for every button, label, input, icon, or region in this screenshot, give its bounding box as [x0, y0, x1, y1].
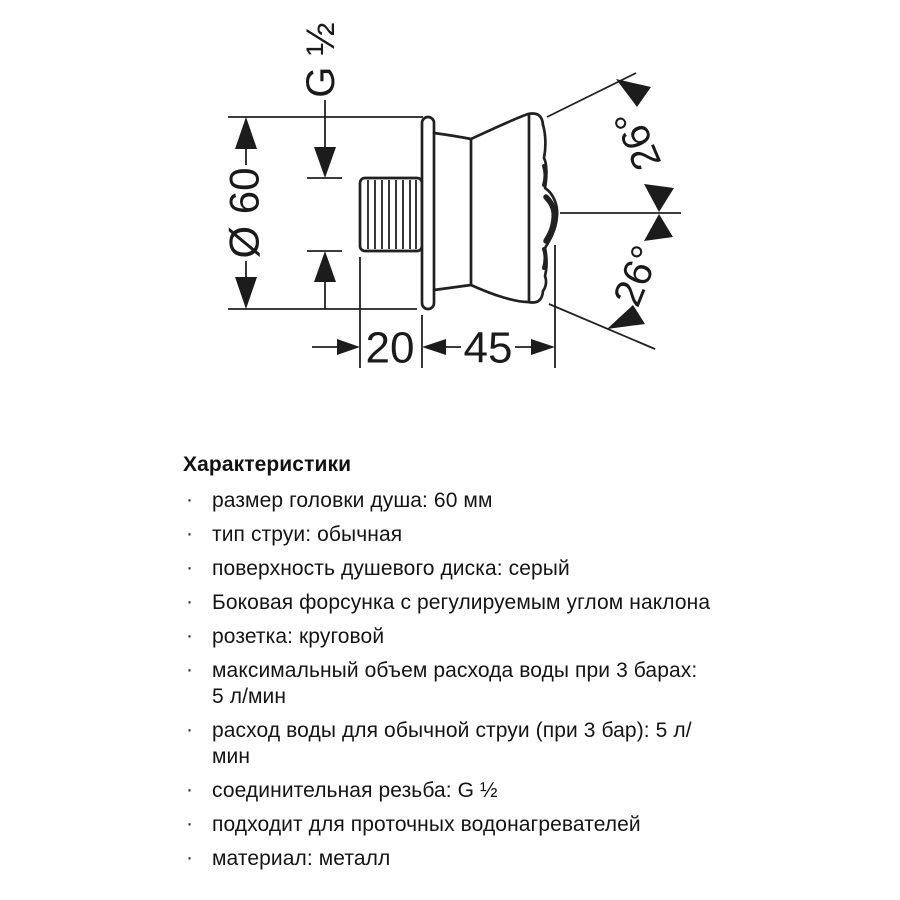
shower-jet-body — [360, 113, 557, 309]
spec-text: подходит для проточных водонагревателей — [212, 813, 641, 836]
upper-tilt-ray — [547, 73, 636, 117]
bullet-dot: · — [186, 777, 193, 803]
bullet-dot: · — [186, 717, 193, 743]
spec-text: соединительная резьба: G ½ — [212, 779, 498, 802]
wall-flange — [422, 117, 434, 309]
spec-text: максимальный объем расхода воды при 3 ба… — [212, 659, 697, 708]
spec-item: ·тип струи: обычная — [183, 522, 728, 548]
spec-text: расход воды для обычной струи (при 3 бар… — [212, 719, 692, 768]
spec-text: тип струи: обычная — [212, 523, 402, 546]
arrowhead-down-icon — [235, 277, 257, 309]
spec-item: ·соединительная резьба: G ½ — [183, 778, 728, 804]
arrowhead-upper-icon — [616, 79, 651, 107]
characteristics-section: Характеристики ·размер головки душа: 60 … — [183, 452, 728, 872]
product-spec-page: Ø 60 G ½ — [0, 0, 900, 900]
spec-text: материал: металл — [212, 847, 390, 870]
angle-upper-label: 26° — [606, 104, 670, 177]
dimension-thread: G ½ — [299, 22, 343, 309]
length-label: 45 — [464, 324, 513, 373]
arrowhead-right-icon — [531, 339, 555, 355]
spec-item: ·розетка: круговой — [183, 624, 728, 650]
spec-item: ·материал: металл — [183, 846, 728, 872]
ball-joint-neck — [434, 133, 471, 290]
bullet-dot: · — [186, 555, 193, 581]
spec-text: розетка: круговой — [212, 625, 384, 648]
technical-drawing: Ø 60 G ½ — [0, 0, 900, 430]
arrowhead-left-icon — [422, 339, 446, 355]
arrowhead-right-icon — [337, 339, 360, 355]
bullet-dot: · — [186, 487, 193, 513]
spec-item: ·подходит для проточных водонагревателей — [183, 812, 728, 838]
specs-list: ·размер головки душа: 60 мм·тип струи: о… — [183, 488, 728, 872]
spec-text: Боковая форсунка с регулируемым углом на… — [212, 591, 710, 614]
bullet-dot: · — [186, 589, 193, 615]
thread-nipple — [360, 178, 422, 251]
face-scallops — [544, 166, 546, 268]
characteristics-heading: Характеристики — [183, 452, 728, 477]
spec-item: ·размер головки душа: 60 мм — [183, 488, 728, 514]
arrowhead-to-centerline-icon — [644, 214, 673, 241]
spec-item: ·Боковая форсунка с регулируемым углом н… — [183, 590, 728, 616]
spec-text: поверхность душевого диска: серый — [212, 557, 570, 580]
dimension-angles: 26° 26° — [547, 73, 681, 349]
angle-lower-label: 26° — [605, 240, 668, 313]
spec-item: ·поверхность душевого диска: серый — [183, 556, 728, 582]
head-cone — [471, 113, 543, 302]
spec-item: ·расход воды для обычной струи (при 3 ба… — [183, 718, 728, 770]
lower-tilt-ray — [549, 304, 655, 349]
bullet-dot: · — [186, 811, 193, 837]
bullet-dot: · — [186, 521, 193, 547]
diameter-label: Ø 60 — [221, 167, 268, 258]
bullet-dot: · — [186, 623, 193, 649]
spec-item: ·максимальный объем расхода воды при 3 б… — [183, 658, 728, 710]
bullet-dot: · — [186, 845, 193, 871]
depth-label: 20 — [366, 324, 415, 373]
thread-label: G ½ — [299, 22, 343, 98]
spec-text: размер головки душа: 60 мм — [212, 489, 493, 512]
arrowhead-up-icon — [314, 251, 336, 282]
arrowhead-down-icon — [314, 147, 336, 178]
bullet-dot: · — [186, 657, 193, 683]
arrowhead-up-icon — [235, 117, 257, 149]
arrowhead-to-centerline-icon — [644, 184, 674, 212]
